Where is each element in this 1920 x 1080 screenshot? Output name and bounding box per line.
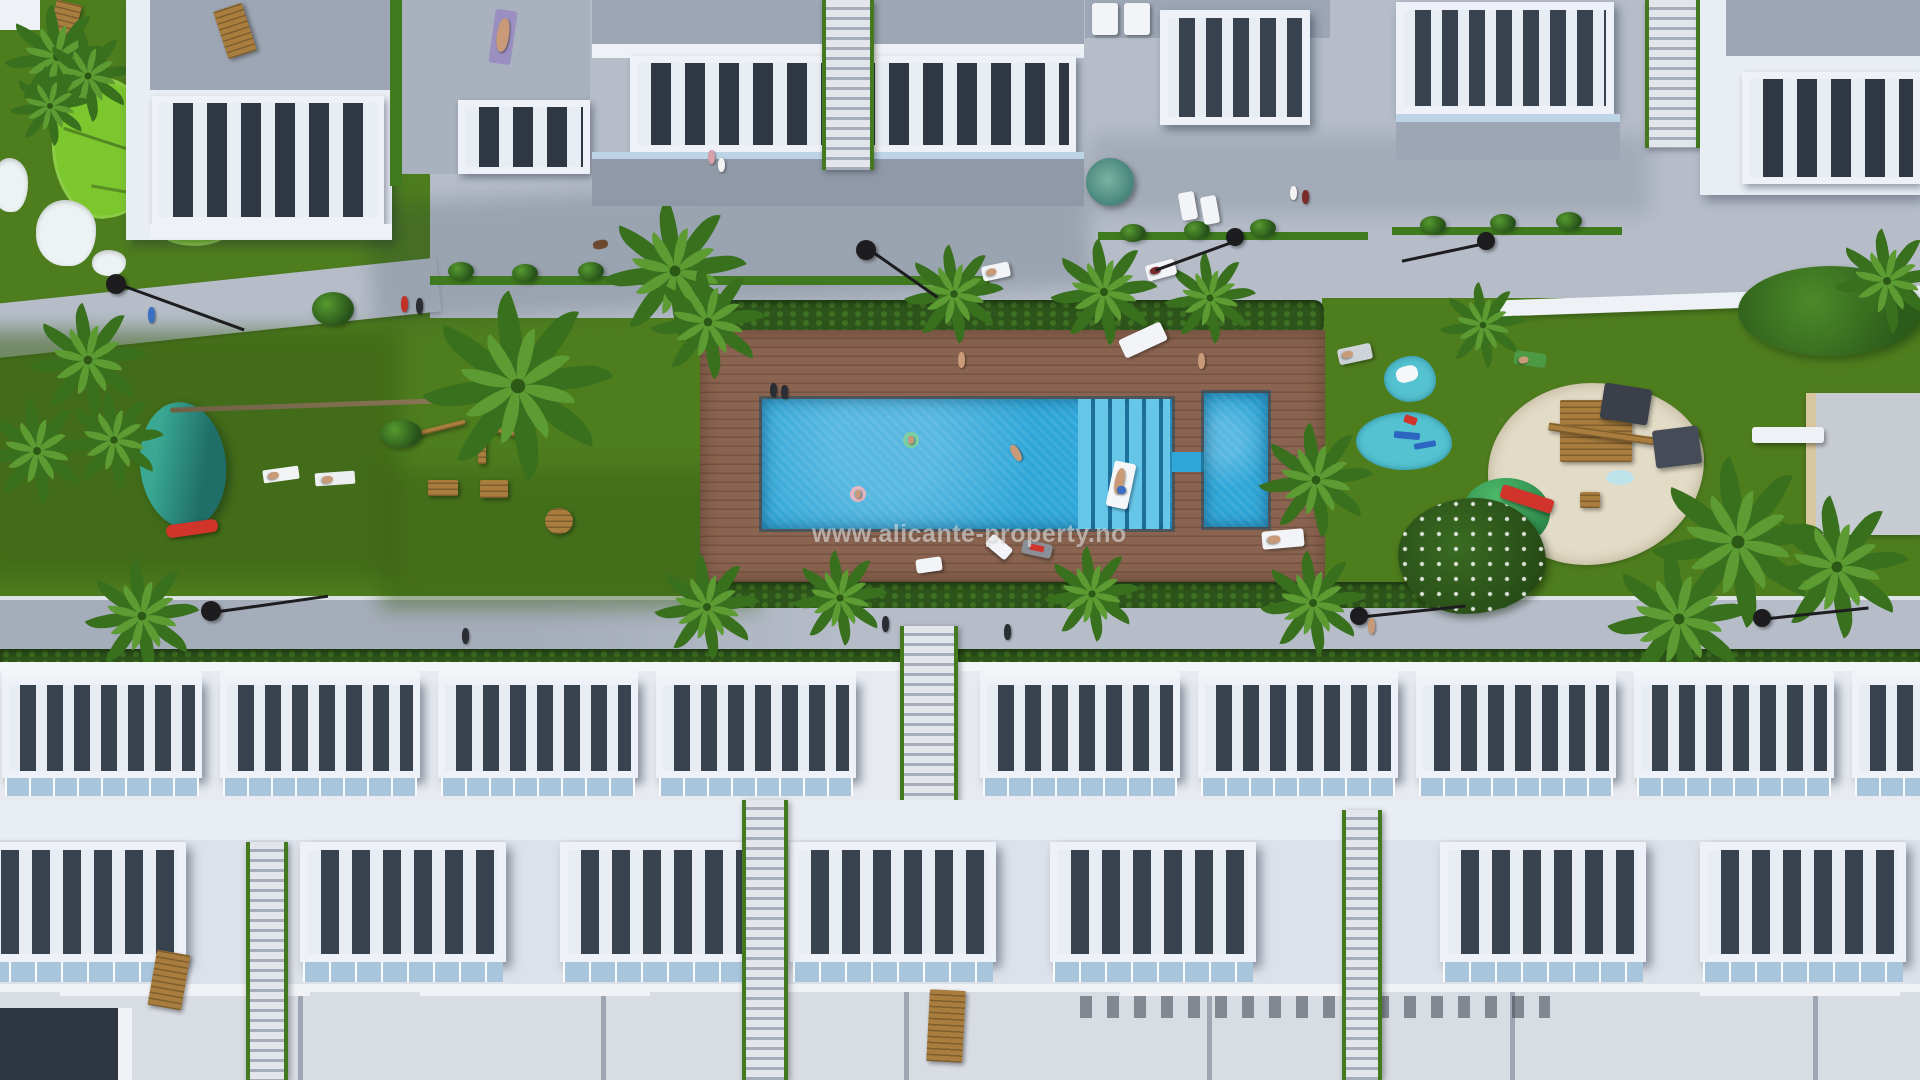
person-walking-deck xyxy=(1198,353,1205,369)
townhouse-pergola-unit xyxy=(220,678,420,778)
street-lamp xyxy=(1753,609,1771,627)
person-walking xyxy=(1290,186,1297,200)
townhouse-pergola-unit xyxy=(438,678,638,778)
townhouse-pergola-unit xyxy=(560,842,766,962)
palm-tree-icon xyxy=(1256,420,1376,540)
watermark: www.alicante-property.no xyxy=(812,520,1108,549)
townhouse-pergola-unit xyxy=(2,678,202,778)
person-walking xyxy=(148,307,155,323)
palm-tree-icon xyxy=(652,552,762,662)
person-walking xyxy=(416,298,423,314)
street-lamp xyxy=(106,274,126,294)
patio-umbrella xyxy=(1086,158,1134,206)
bench xyxy=(1752,427,1824,443)
street-lamp xyxy=(856,240,876,260)
staircase xyxy=(900,626,958,802)
rooftop-balustrade xyxy=(152,96,384,224)
sun-lounger xyxy=(1092,3,1118,35)
person-walking xyxy=(462,628,469,644)
aerial-render-residential-complex: www.alicante-property.no xyxy=(0,0,1920,1080)
shrub xyxy=(1420,216,1446,234)
building-sill xyxy=(150,224,392,238)
street-lamp xyxy=(1226,228,1244,246)
townhouse-pergola-unit xyxy=(1634,678,1834,778)
sand-pond xyxy=(1606,470,1634,485)
person-walking xyxy=(708,150,715,164)
row-wall xyxy=(0,800,1920,840)
street-lamp xyxy=(1477,232,1495,250)
person-standing xyxy=(770,383,777,397)
townhouse-pergola-unit xyxy=(1440,842,1646,962)
shrub xyxy=(512,264,538,282)
street-lamp xyxy=(201,601,221,621)
roof-terrace xyxy=(150,0,392,90)
rooftop-pergola xyxy=(1160,10,1310,125)
palm-tree-icon xyxy=(1258,548,1368,658)
shrub xyxy=(1250,219,1276,237)
palm-tree-icon xyxy=(8,64,92,148)
townhouse-pergola-unit xyxy=(980,678,1180,778)
shrub xyxy=(1490,214,1516,232)
person-standing xyxy=(781,385,788,399)
bush xyxy=(380,420,422,448)
sandbox-item xyxy=(1580,492,1600,508)
palm-tree-icon xyxy=(1042,544,1142,644)
roof-frame xyxy=(420,984,650,996)
terrace-level xyxy=(1396,122,1620,160)
person-walking xyxy=(401,296,408,312)
roof-terrace xyxy=(1726,0,1920,56)
townhouse-pergola-unit xyxy=(1416,678,1616,778)
person-walking xyxy=(1368,618,1375,634)
shrub xyxy=(1556,212,1582,230)
palm-tree-icon xyxy=(62,388,166,492)
rooftop-balustrade xyxy=(1742,72,1920,184)
staircase xyxy=(1342,810,1382,1080)
townhouse-pergola-unit xyxy=(0,842,186,962)
townhouse-pergola-unit xyxy=(656,678,856,778)
shrub xyxy=(448,262,474,280)
townhouse-pergola-unit xyxy=(300,842,506,962)
sand-bunker xyxy=(92,250,126,276)
staircase xyxy=(822,0,874,170)
pergola-shadow xyxy=(1080,996,1550,1018)
palm-tree-icon xyxy=(1438,280,1528,370)
person-walking xyxy=(882,616,889,632)
roof-frame xyxy=(1120,984,1380,996)
rooftop-pergola xyxy=(1396,2,1614,114)
palm-tree-icon xyxy=(648,262,768,382)
palm-tree-icon xyxy=(902,242,1006,346)
staircase xyxy=(246,842,288,1080)
play-spinner xyxy=(545,508,573,534)
balcony-balustrade xyxy=(458,100,590,174)
townhouse-pergola-unit xyxy=(1852,678,1920,778)
towel xyxy=(315,471,356,487)
person-walking xyxy=(718,158,725,172)
green-strip xyxy=(390,0,402,186)
townhouse-pergola-unit xyxy=(790,842,996,962)
swimmer xyxy=(908,436,914,444)
balcony-frame xyxy=(118,1008,132,1080)
townhouse-pergola-unit xyxy=(1050,842,1256,962)
staircase xyxy=(1645,0,1700,148)
sun-lounger xyxy=(1124,3,1150,35)
staircase xyxy=(742,800,788,1080)
townhouse-pergola-unit xyxy=(1700,842,1906,962)
sand-bunker xyxy=(36,200,96,266)
palm-tree-icon xyxy=(1762,492,1912,642)
palm-tree-icon xyxy=(1162,250,1258,346)
person-walking-deck xyxy=(958,352,965,368)
flowering-tree xyxy=(1398,498,1546,614)
play-canopy xyxy=(1599,382,1652,425)
palm-tree-icon xyxy=(1832,226,1920,336)
wooden-lounger xyxy=(926,989,966,1063)
dark-balcony xyxy=(0,1008,120,1080)
pool-channel xyxy=(1172,452,1206,472)
person-walking xyxy=(1302,190,1309,204)
palm-tree-icon xyxy=(1048,236,1160,348)
palm-tree-icon xyxy=(82,556,202,676)
palm-tree-icon xyxy=(790,548,890,648)
palm-tree-icon xyxy=(418,286,618,486)
street-lamp xyxy=(1350,607,1368,625)
swimmer xyxy=(855,490,861,498)
townhouse-pergola-unit xyxy=(1198,678,1398,778)
bush xyxy=(312,292,354,326)
roof-frame xyxy=(1700,984,1900,996)
balcony-glass xyxy=(1396,114,1620,122)
person-walking xyxy=(1004,624,1011,640)
